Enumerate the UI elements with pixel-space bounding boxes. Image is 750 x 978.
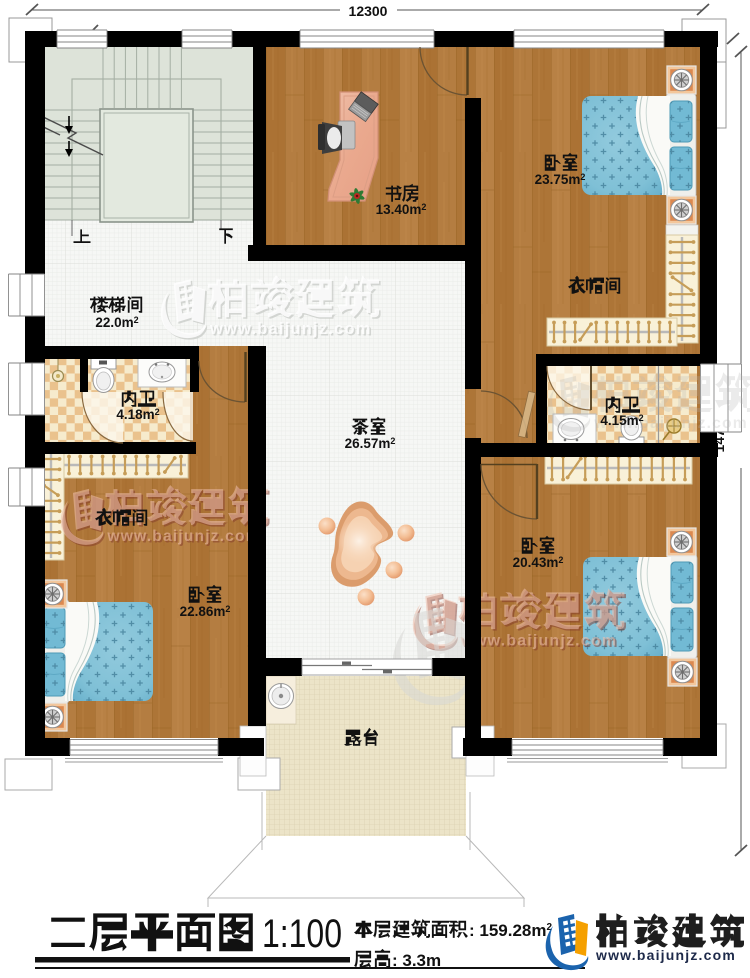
svg-text:www.baijunjz.com: www.baijunjz.com (209, 320, 372, 338)
svg-text:www.baijunjz.com: www.baijunjz.com (106, 528, 260, 545)
svg-text:www.baijunjz.com: www.baijunjz.com (459, 632, 617, 649)
svg-text:13.40m2: 13.40m2 (376, 202, 427, 217)
svg-text:1:100: 1:100 (262, 912, 342, 956)
svg-text:4.18m2: 4.18m2 (116, 407, 159, 422)
svg-text:26.57m2: 26.57m2 (345, 436, 396, 451)
svg-text:4.15m2: 4.15m2 (600, 413, 643, 428)
svg-text:www.baijunjz.com: www.baijunjz.com (595, 947, 736, 963)
svg-text:23.75m2: 23.75m2 (535, 172, 586, 187)
svg-text:: 3.3m: : 3.3m (392, 951, 441, 970)
svg-text:12300: 12300 (349, 3, 388, 19)
svg-text:20.43m2: 20.43m2 (513, 555, 564, 570)
svg-text:22.86m2: 22.86m2 (180, 604, 231, 619)
svg-text:: 159.28m2: : 159.28m2 (469, 921, 553, 940)
svg-text:22.0m2: 22.0m2 (95, 315, 138, 330)
